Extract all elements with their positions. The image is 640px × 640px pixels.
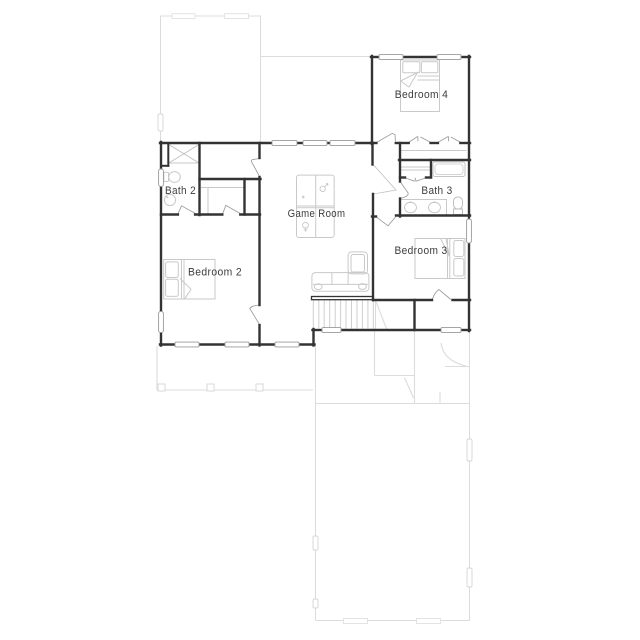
svg-text:Bedroom 3: Bedroom 3 <box>395 245 448 257</box>
svg-text:Bedroom 2: Bedroom 2 <box>188 267 242 279</box>
svg-text:Bedroom 4: Bedroom 4 <box>395 89 449 101</box>
svg-text:Game Room: Game Room <box>288 208 346 220</box>
svg-text:Bath 3: Bath 3 <box>421 185 452 197</box>
svg-text:Bath 2: Bath 2 <box>165 185 196 197</box>
